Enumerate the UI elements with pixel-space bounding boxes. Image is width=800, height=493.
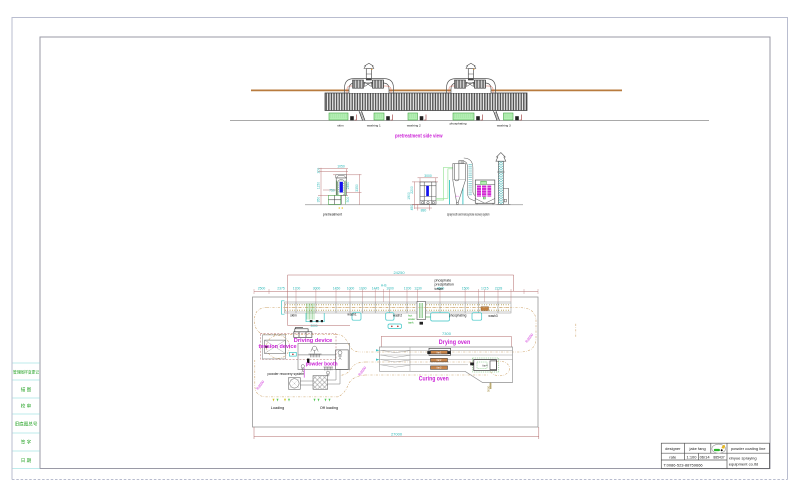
svg-text:wash1: wash1 xyxy=(347,313,356,317)
svg-text:jake fang: jake fang xyxy=(688,446,705,451)
svg-text:06/14: 06/14 xyxy=(700,454,711,459)
svg-text:1000: 1000 xyxy=(359,287,367,291)
svg-text:designer: designer xyxy=(665,446,681,451)
svg-text:fan1: fan1 xyxy=(437,351,442,354)
svg-text:1230: 1230 xyxy=(414,287,422,291)
svg-text:pretreatment: pretreatment xyxy=(323,212,342,216)
svg-text:tension device: tension device xyxy=(259,344,297,350)
svg-text:450: 450 xyxy=(410,205,414,211)
svg-text:fan4: fan4 xyxy=(482,363,488,367)
svg-text:fan3: fan3 xyxy=(437,367,442,370)
svg-text:powder booth: powder booth xyxy=(306,362,338,368)
svg-text:1000: 1000 xyxy=(347,287,355,291)
svg-text:phosphating: phosphating xyxy=(450,122,467,126)
svg-text:885437: 885437 xyxy=(713,455,724,459)
svg-text:T:0086-523-88759666: T:0086-523-88759666 xyxy=(664,462,704,467)
svg-text:wash3: wash3 xyxy=(488,314,497,318)
svg-text:2375: 2375 xyxy=(277,287,285,291)
svg-text:Curing oven: Curing oven xyxy=(419,376,449,382)
svg-text:3000: 3000 xyxy=(313,287,321,291)
svg-text:5000: 5000 xyxy=(487,385,491,392)
svg-text:Driving device: Driving device xyxy=(294,338,333,344)
svg-text:350: 350 xyxy=(317,197,321,203)
svg-text:3000: 3000 xyxy=(424,174,432,178)
svg-text:rate: rate xyxy=(669,454,677,459)
svg-text:校 审: 校 审 xyxy=(21,403,32,410)
svg-text:1700: 1700 xyxy=(293,287,301,291)
svg-text:skim: skim xyxy=(290,313,297,317)
svg-text:1715: 1715 xyxy=(481,287,489,291)
svg-text:1:100: 1:100 xyxy=(686,454,697,459)
svg-text:washing 2: washing 2 xyxy=(407,123,421,127)
svg-text:1050: 1050 xyxy=(337,165,345,169)
svg-text:powder recovery system: powder recovery system xyxy=(268,372,305,376)
svg-text:washing 3: washing 3 xyxy=(497,123,511,127)
svg-text:pretreatment side view: pretreatment side view xyxy=(395,134,443,140)
svg-text:powder coating line: powder coating line xyxy=(731,446,766,451)
svg-text:描 图: 描 图 xyxy=(21,386,32,393)
svg-text:签 字: 签 字 xyxy=(21,439,32,445)
svg-text:管理图样变更记: 管理图样变更记 xyxy=(13,369,39,375)
svg-text:wash2: wash2 xyxy=(393,313,402,317)
svg-text:1900: 1900 xyxy=(407,192,411,200)
svg-text:1000: 1000 xyxy=(386,287,394,291)
svg-text:200: 200 xyxy=(317,168,321,174)
svg-text:2500: 2500 xyxy=(258,287,266,291)
svg-text:7300: 7300 xyxy=(442,331,452,336)
svg-text:3000: 3000 xyxy=(310,324,317,328)
svg-text:3350: 3350 xyxy=(355,184,359,192)
svg-text:1150: 1150 xyxy=(317,182,321,189)
svg-text:1450: 1450 xyxy=(333,287,341,291)
svg-text:880: 880 xyxy=(421,209,427,213)
svg-text:Drying oven: Drying oven xyxy=(439,340,471,346)
svg-text:Loading: Loading xyxy=(271,406,285,410)
svg-text:washing 1: washing 1 xyxy=(367,123,381,127)
svg-text:1500: 1500 xyxy=(462,287,470,291)
svg-text:24250: 24250 xyxy=(393,270,405,275)
svg-text:Off loading: Off loading xyxy=(320,406,338,410)
svg-text:spray booth and monocyclone re: spray booth and monocyclone recovery sys… xyxy=(447,213,490,217)
svg-text:1445: 1445 xyxy=(372,287,380,291)
svg-text:1700: 1700 xyxy=(404,287,412,291)
svg-text:xinyue spraying: xinyue spraying xyxy=(729,455,757,460)
svg-text:equipment co.ltd: equipment co.ltd xyxy=(729,461,758,466)
svg-text:旧底图总号: 旧底图总号 xyxy=(15,421,38,428)
svg-text:phosphating: phosphating xyxy=(449,314,467,318)
svg-text:2228: 2228 xyxy=(495,287,503,291)
svg-text:27000: 27000 xyxy=(391,431,403,436)
svg-text:750: 750 xyxy=(329,189,335,193)
svg-text:skim: skim xyxy=(337,123,344,127)
svg-text:500: 500 xyxy=(346,197,350,203)
svg-text:fan2: fan2 xyxy=(437,359,442,362)
svg-text:tank: tank xyxy=(408,321,414,325)
svg-text:tower: tower xyxy=(435,287,445,291)
